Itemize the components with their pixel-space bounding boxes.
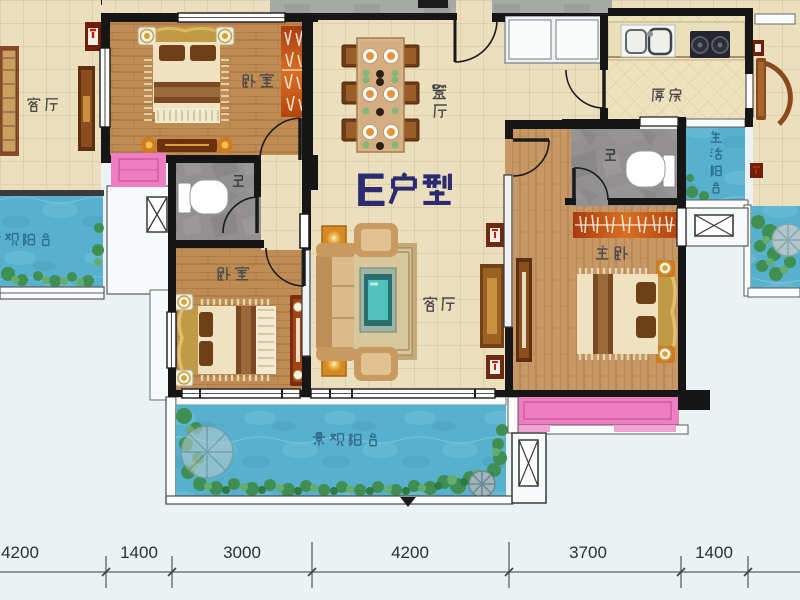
svg-text:4200: 4200	[391, 543, 429, 562]
svg-text:3700: 3700	[569, 543, 607, 562]
svg-text:3000: 3000	[223, 543, 261, 562]
svg-text:1400: 1400	[695, 543, 733, 562]
svg-text:4200: 4200	[1, 543, 39, 562]
svg-text:1400: 1400	[120, 543, 158, 562]
svg-text:E: E	[355, 163, 386, 216]
